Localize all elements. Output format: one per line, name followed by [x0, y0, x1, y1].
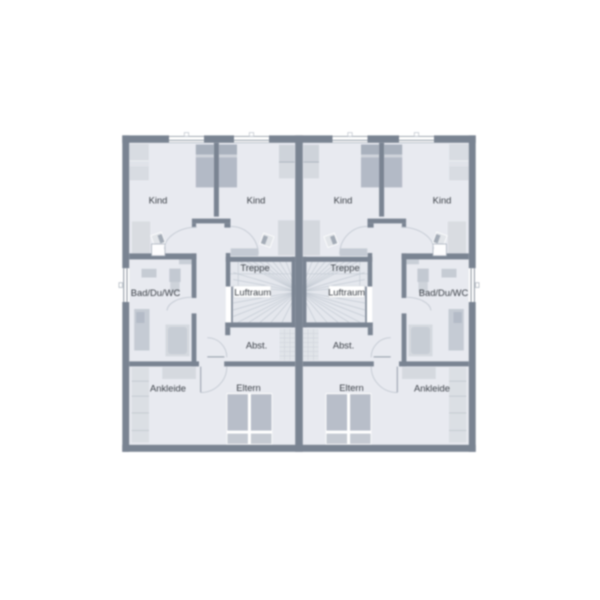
svg-text:Luftraum: Luftraum — [234, 287, 271, 298]
svg-text:Luftraum: Luftraum — [328, 287, 365, 298]
svg-text:Abst.: Abst. — [246, 339, 267, 350]
svg-text:Eltern: Eltern — [339, 382, 364, 393]
svg-text:Kind: Kind — [149, 194, 168, 205]
svg-text:Kind: Kind — [247, 194, 266, 205]
svg-text:Bad/Du/WC: Bad/Du/WC — [419, 287, 469, 298]
svg-text:Abst.: Abst. — [333, 339, 354, 350]
svg-text:Ankleide: Ankleide — [414, 383, 450, 394]
svg-text:Kind: Kind — [433, 194, 452, 205]
svg-text:Treppe: Treppe — [330, 262, 359, 273]
svg-text:Eltern: Eltern — [236, 382, 261, 393]
svg-text:Ankleide: Ankleide — [150, 383, 186, 394]
svg-text:Kind: Kind — [334, 194, 353, 205]
svg-text:Treppe: Treppe — [240, 262, 269, 273]
svg-text:Bad/Du/WC: Bad/Du/WC — [131, 287, 181, 298]
